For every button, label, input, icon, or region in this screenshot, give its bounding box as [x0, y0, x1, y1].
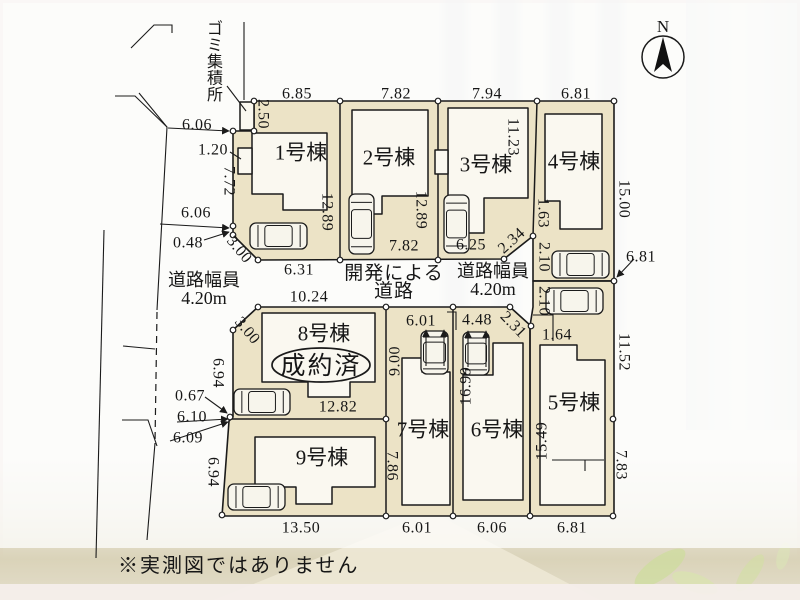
- boundary-marker: [383, 513, 389, 519]
- dimension-label: 7.83: [612, 450, 629, 480]
- north-label: N: [657, 17, 669, 36]
- boundary-marker: [230, 223, 236, 229]
- road-width-right-line1: 道路幅員: [457, 261, 529, 281]
- car-icon: [234, 389, 290, 415]
- dimension-label: 7.86: [383, 451, 400, 481]
- boundary-marker: [227, 414, 233, 420]
- boundary-marker: [450, 304, 456, 310]
- dimension-label: 1.64: [542, 327, 572, 344]
- dimension-label: 6.31: [284, 262, 314, 279]
- dimension-label: 6.10: [177, 409, 207, 426]
- dimension-label: 1.20: [198, 142, 228, 159]
- dimension-label: 9.00: [387, 346, 404, 376]
- dimension-label: 4.48: [462, 312, 492, 329]
- boundary-marker: [450, 513, 456, 519]
- car-icon: [546, 288, 603, 314]
- lot-label: 4号棟: [548, 149, 601, 173]
- dimension-label: 12.89: [412, 191, 429, 230]
- lot-label: 5号棟: [548, 390, 601, 414]
- dimension-label: 11.23: [504, 118, 521, 156]
- dimension-label: 6.81: [626, 249, 656, 266]
- lot-label: 6号棟: [471, 417, 524, 441]
- boundary-marker: [611, 98, 617, 104]
- building-3-porch: [435, 150, 448, 174]
- dimension-label: 6.09: [173, 430, 203, 447]
- boundary-marker: [337, 98, 343, 104]
- lot-label: 1号棟: [275, 140, 328, 164]
- lot-label: 2号棟: [363, 145, 416, 169]
- dimension-label: 6.01: [402, 520, 432, 537]
- dimension-label: 1.63: [534, 198, 551, 228]
- dimension-label: 6.06: [181, 205, 211, 222]
- lot-label: 7号棟: [397, 417, 450, 441]
- dimension-label: 7.82: [381, 86, 411, 103]
- dimension-label: 15.00: [615, 180, 632, 219]
- dimension-label: 6.94: [209, 358, 226, 388]
- dimension-label: 0.48: [173, 235, 203, 252]
- boundary-marker: [527, 513, 533, 519]
- site-plan-drawing: 6.857.827.946.812.506.061.207.726.060.48…: [0, 0, 800, 600]
- road-width-right-line2: 4.20m: [470, 279, 516, 299]
- boundary-marker: [610, 416, 616, 422]
- boundary-marker: [383, 304, 389, 310]
- road-width-left-line1: 道路幅員: [168, 270, 240, 290]
- dimension-label: 10.24: [290, 289, 329, 306]
- lot-label: 9号棟: [296, 445, 349, 469]
- north-compass: N: [642, 17, 684, 78]
- garbage-area-label: ゴミ集積所: [207, 19, 223, 104]
- boundary-marker: [219, 512, 225, 518]
- boundary-marker: [383, 416, 389, 422]
- dimension-label: 0.67: [175, 388, 205, 405]
- dimension-label: 7.82: [389, 238, 419, 255]
- boundary-marker: [534, 98, 540, 104]
- dimension-label: 15.49: [534, 422, 551, 461]
- dimension-label: 12.89: [318, 193, 335, 232]
- dimension-label: 2.10: [535, 242, 552, 272]
- dimension-label: 6.25: [456, 237, 486, 254]
- building-1-porch: [238, 148, 252, 174]
- boundary-marker: [611, 278, 617, 284]
- car-icon: [552, 251, 609, 278]
- dimension-label: 6.85: [282, 86, 312, 103]
- dimension-label: 7.72: [220, 166, 237, 196]
- car-icon: [250, 223, 307, 249]
- disclaimer-note: ※実測図ではありません: [118, 554, 359, 577]
- dimension-label: 6.01: [406, 313, 436, 330]
- dimension-label: 13.50: [282, 520, 321, 537]
- boundary-marker: [435, 257, 441, 263]
- car-icon: [228, 484, 285, 510]
- boundary-marker: [610, 513, 616, 519]
- dimension-label: 2.10: [535, 286, 552, 316]
- dimension-label: 6.06: [477, 520, 507, 537]
- compass-needle-icon: [654, 37, 672, 72]
- dimension-label: 2.50: [254, 99, 271, 129]
- dimension-label: 7.94: [472, 86, 502, 103]
- car-icon: [349, 194, 374, 254]
- boundary-marker: [530, 233, 536, 239]
- road-width-left-line2: 4.20m: [181, 288, 227, 308]
- boundary-marker: [435, 98, 441, 104]
- lot-label: 3号棟: [460, 152, 513, 176]
- boundary-marker: [255, 257, 261, 263]
- dimension-label: 12.82: [319, 399, 358, 416]
- sold-badge-label: 成約済: [280, 352, 361, 380]
- boundary-marker: [255, 304, 261, 310]
- dimension-label: 6.94: [204, 457, 221, 487]
- dimension-label: 6.06: [182, 117, 212, 134]
- dimension-label: 6.81: [561, 86, 591, 103]
- center-road-label-line2: 道路: [374, 280, 414, 302]
- dimension-label: 6.81: [557, 520, 587, 537]
- boundary-marker: [230, 128, 236, 134]
- site-plan-photo: 6.857.827.946.812.506.061.207.726.060.48…: [0, 0, 800, 600]
- lot-label: 8号棟: [298, 321, 351, 345]
- boundary-marker: [251, 128, 257, 134]
- dimension-label: 11.52: [615, 333, 632, 371]
- boundary-marker: [337, 257, 343, 263]
- dimension-label: 16.99: [458, 367, 475, 406]
